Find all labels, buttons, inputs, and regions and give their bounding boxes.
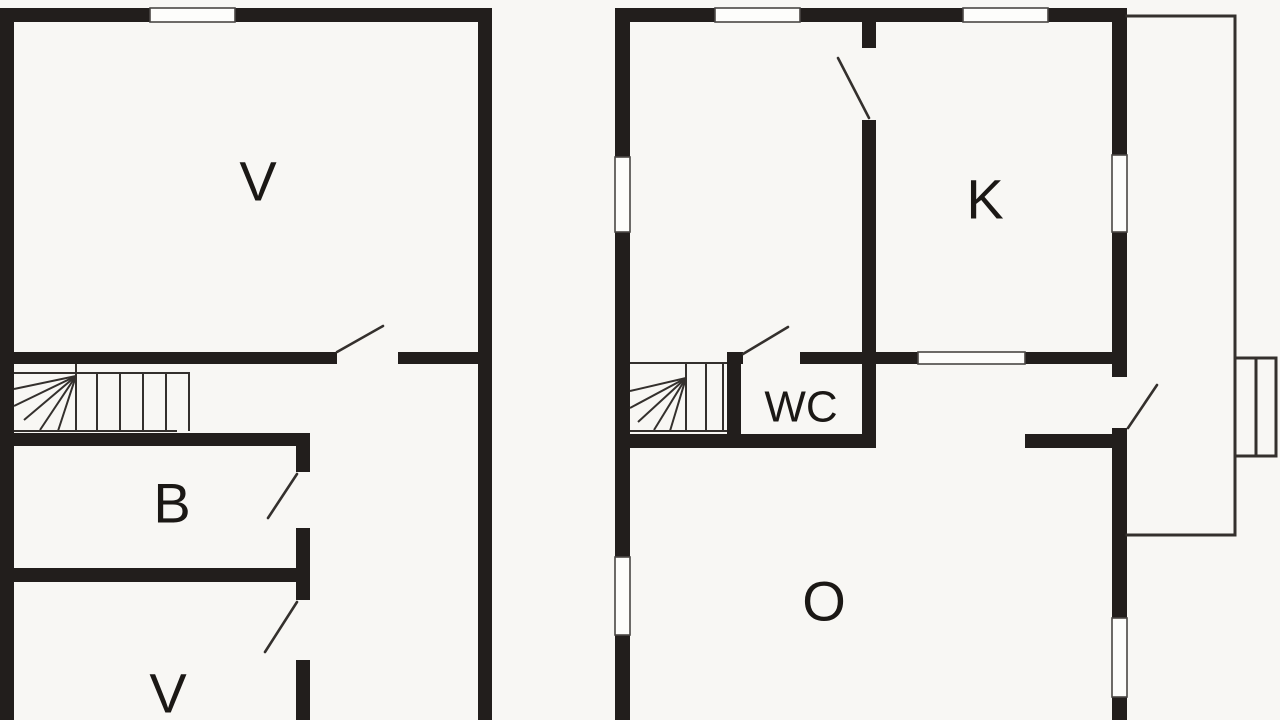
wall-segment	[800, 8, 963, 22]
room-label-v-lower-left: V	[149, 662, 187, 720]
room-label-wc: WC	[764, 383, 837, 432]
wall-segment	[0, 8, 492, 22]
window	[150, 8, 235, 22]
room-label-b: B	[153, 472, 190, 535]
wall-segment	[615, 232, 630, 557]
wall-segment	[630, 434, 876, 448]
wall-segment	[862, 22, 876, 48]
wall-segment	[615, 8, 715, 22]
floor-plan-canvas: VBVKWCO	[0, 0, 1280, 720]
wall-segment	[1112, 697, 1127, 720]
wall-segment	[1025, 434, 1112, 448]
wall-segment	[1112, 232, 1127, 377]
wall-segment	[296, 528, 310, 568]
window	[715, 8, 800, 22]
wall-segment	[615, 635, 630, 720]
floor-plan-page: VBVKWCO	[0, 0, 1280, 720]
wall-segment	[296, 660, 310, 720]
room-label-k: K	[966, 168, 1003, 231]
wall-segment	[727, 352, 741, 448]
wall-segment	[1112, 8, 1127, 155]
wall-segment	[615, 8, 630, 157]
window	[1112, 155, 1127, 232]
window	[963, 8, 1048, 22]
room-label-o: O	[802, 570, 846, 633]
window	[1112, 618, 1127, 697]
wall-segment	[0, 352, 337, 364]
wall-segment	[1112, 428, 1127, 618]
wall-segment	[0, 433, 310, 446]
wall-segment	[0, 568, 310, 582]
wall-segment	[1025, 352, 1112, 364]
wall-segment	[862, 120, 876, 448]
room-label-v-upper-left: V	[239, 150, 277, 213]
window	[615, 557, 630, 635]
window	[615, 157, 630, 232]
wall-segment	[876, 352, 918, 364]
wall-segment	[296, 446, 310, 472]
wall-segment	[296, 582, 310, 600]
wall-segment	[398, 352, 492, 364]
window	[918, 352, 1025, 364]
wall-segment	[800, 352, 862, 364]
